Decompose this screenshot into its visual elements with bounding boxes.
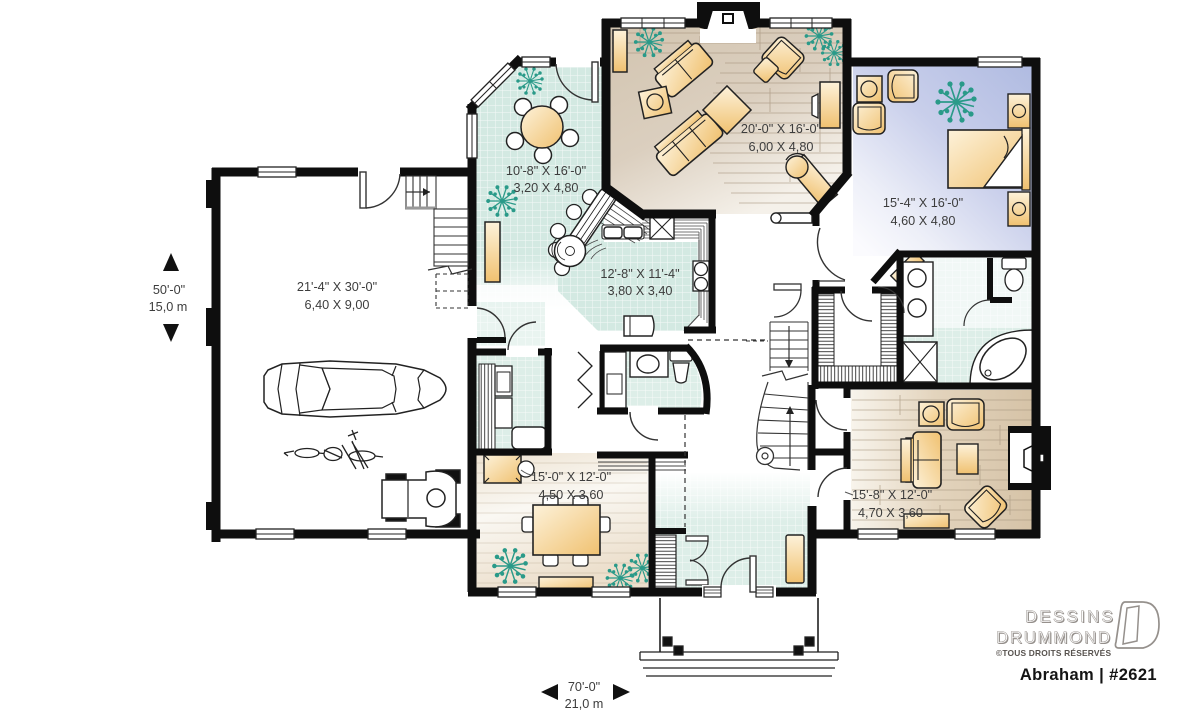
svg-text:4,60 X 4,80: 4,60 X 4,80 xyxy=(891,214,956,228)
svg-text:15'-8" X 12'-0": 15'-8" X 12'-0" xyxy=(852,488,932,502)
svg-text:10'-8" X 16'-0": 10'-8" X 16'-0" xyxy=(506,164,586,178)
svg-text:DESSINS: DESSINS xyxy=(1025,607,1115,626)
svg-text:12'-8" X 11'-4": 12'-8" X 11'-4" xyxy=(600,267,679,281)
svg-text:20'-0" X 16'-0": 20'-0" X 16'-0" xyxy=(741,122,821,136)
svg-text:3,80 X 3,40: 3,80 X 3,40 xyxy=(608,284,673,298)
svg-text:21,0 m: 21,0 m xyxy=(565,697,604,711)
svg-text:DRUMMOND: DRUMMOND xyxy=(996,628,1112,647)
svg-text:15'-4" X 16'-0": 15'-4" X 16'-0" xyxy=(883,196,963,210)
svg-text:50'-0": 50'-0" xyxy=(153,283,185,297)
svg-text:70'-0": 70'-0" xyxy=(568,680,600,694)
svg-text:©TOUS DROITS RÉSERVÉS: ©TOUS DROITS RÉSERVÉS xyxy=(996,647,1111,658)
svg-text:15'-0" X 12'-0": 15'-0" X 12'-0" xyxy=(531,470,611,484)
svg-text:4,50 X 3,60: 4,50 X 3,60 xyxy=(539,488,604,502)
svg-text:3,20 X 4,80: 3,20 X 4,80 xyxy=(514,181,579,195)
svg-text:Abraham | #2621: Abraham | #2621 xyxy=(1020,666,1157,684)
svg-text:6,00 X 4,80: 6,00 X 4,80 xyxy=(749,140,814,154)
svg-text:21'-4" X 30'-0": 21'-4" X 30'-0" xyxy=(297,280,377,294)
svg-text:15,0 m: 15,0 m xyxy=(149,300,188,314)
svg-text:6,40 X 9,00: 6,40 X 9,00 xyxy=(305,298,370,312)
svg-text:4,70 X 3,60: 4,70 X 3,60 xyxy=(858,506,923,520)
